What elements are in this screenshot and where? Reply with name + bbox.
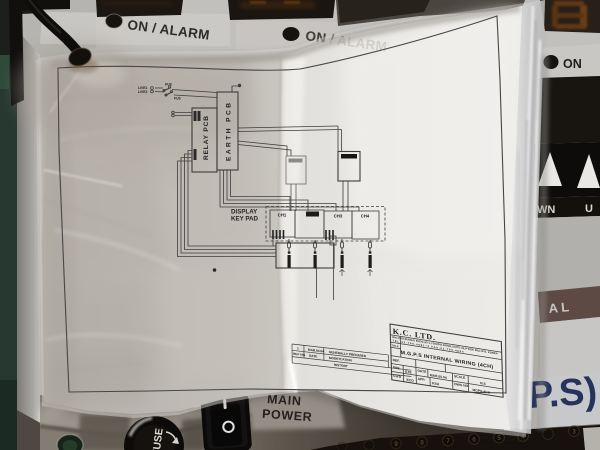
svg-text:CH4: CH4 bbox=[361, 214, 370, 219]
svg-text:CH1: CH1 bbox=[278, 213, 287, 218]
svg-text:KEY PAD: KEY PAD bbox=[231, 216, 258, 223]
svg-text:FUSE: FUSE bbox=[150, 428, 165, 450]
svg-text:ON: ON bbox=[563, 57, 582, 71]
svg-text:FUS: FUS bbox=[174, 97, 182, 101]
svg-text:RELAY PCB: RELAY PCB bbox=[203, 116, 210, 160]
svg-text:U: U bbox=[585, 203, 593, 215]
svg-text:DISPLAY: DISPLAY bbox=[231, 209, 258, 216]
svg-text:CH3: CH3 bbox=[334, 214, 343, 219]
svg-text:A L: A L bbox=[548, 299, 570, 316]
svg-text:FUS: FUS bbox=[165, 83, 173, 87]
svg-text:EARTH PCB: EARTH PCB bbox=[226, 103, 233, 161]
svg-text:1: 1 bbox=[297, 346, 299, 350]
svg-text:LIVE2: LIVE2 bbox=[138, 90, 148, 94]
